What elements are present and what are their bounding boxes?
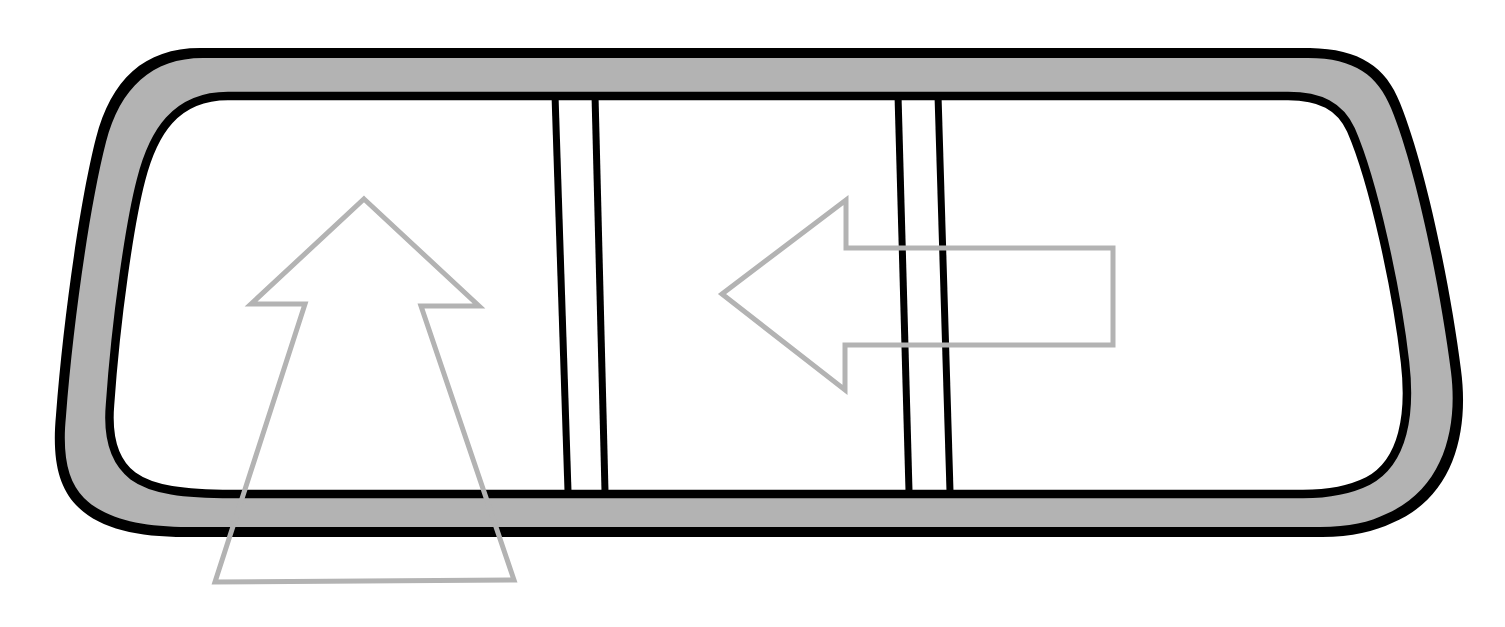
window-glass	[109, 96, 1406, 494]
diagram-canvas	[0, 0, 1505, 627]
sliding-window-diagram	[0, 0, 1505, 627]
